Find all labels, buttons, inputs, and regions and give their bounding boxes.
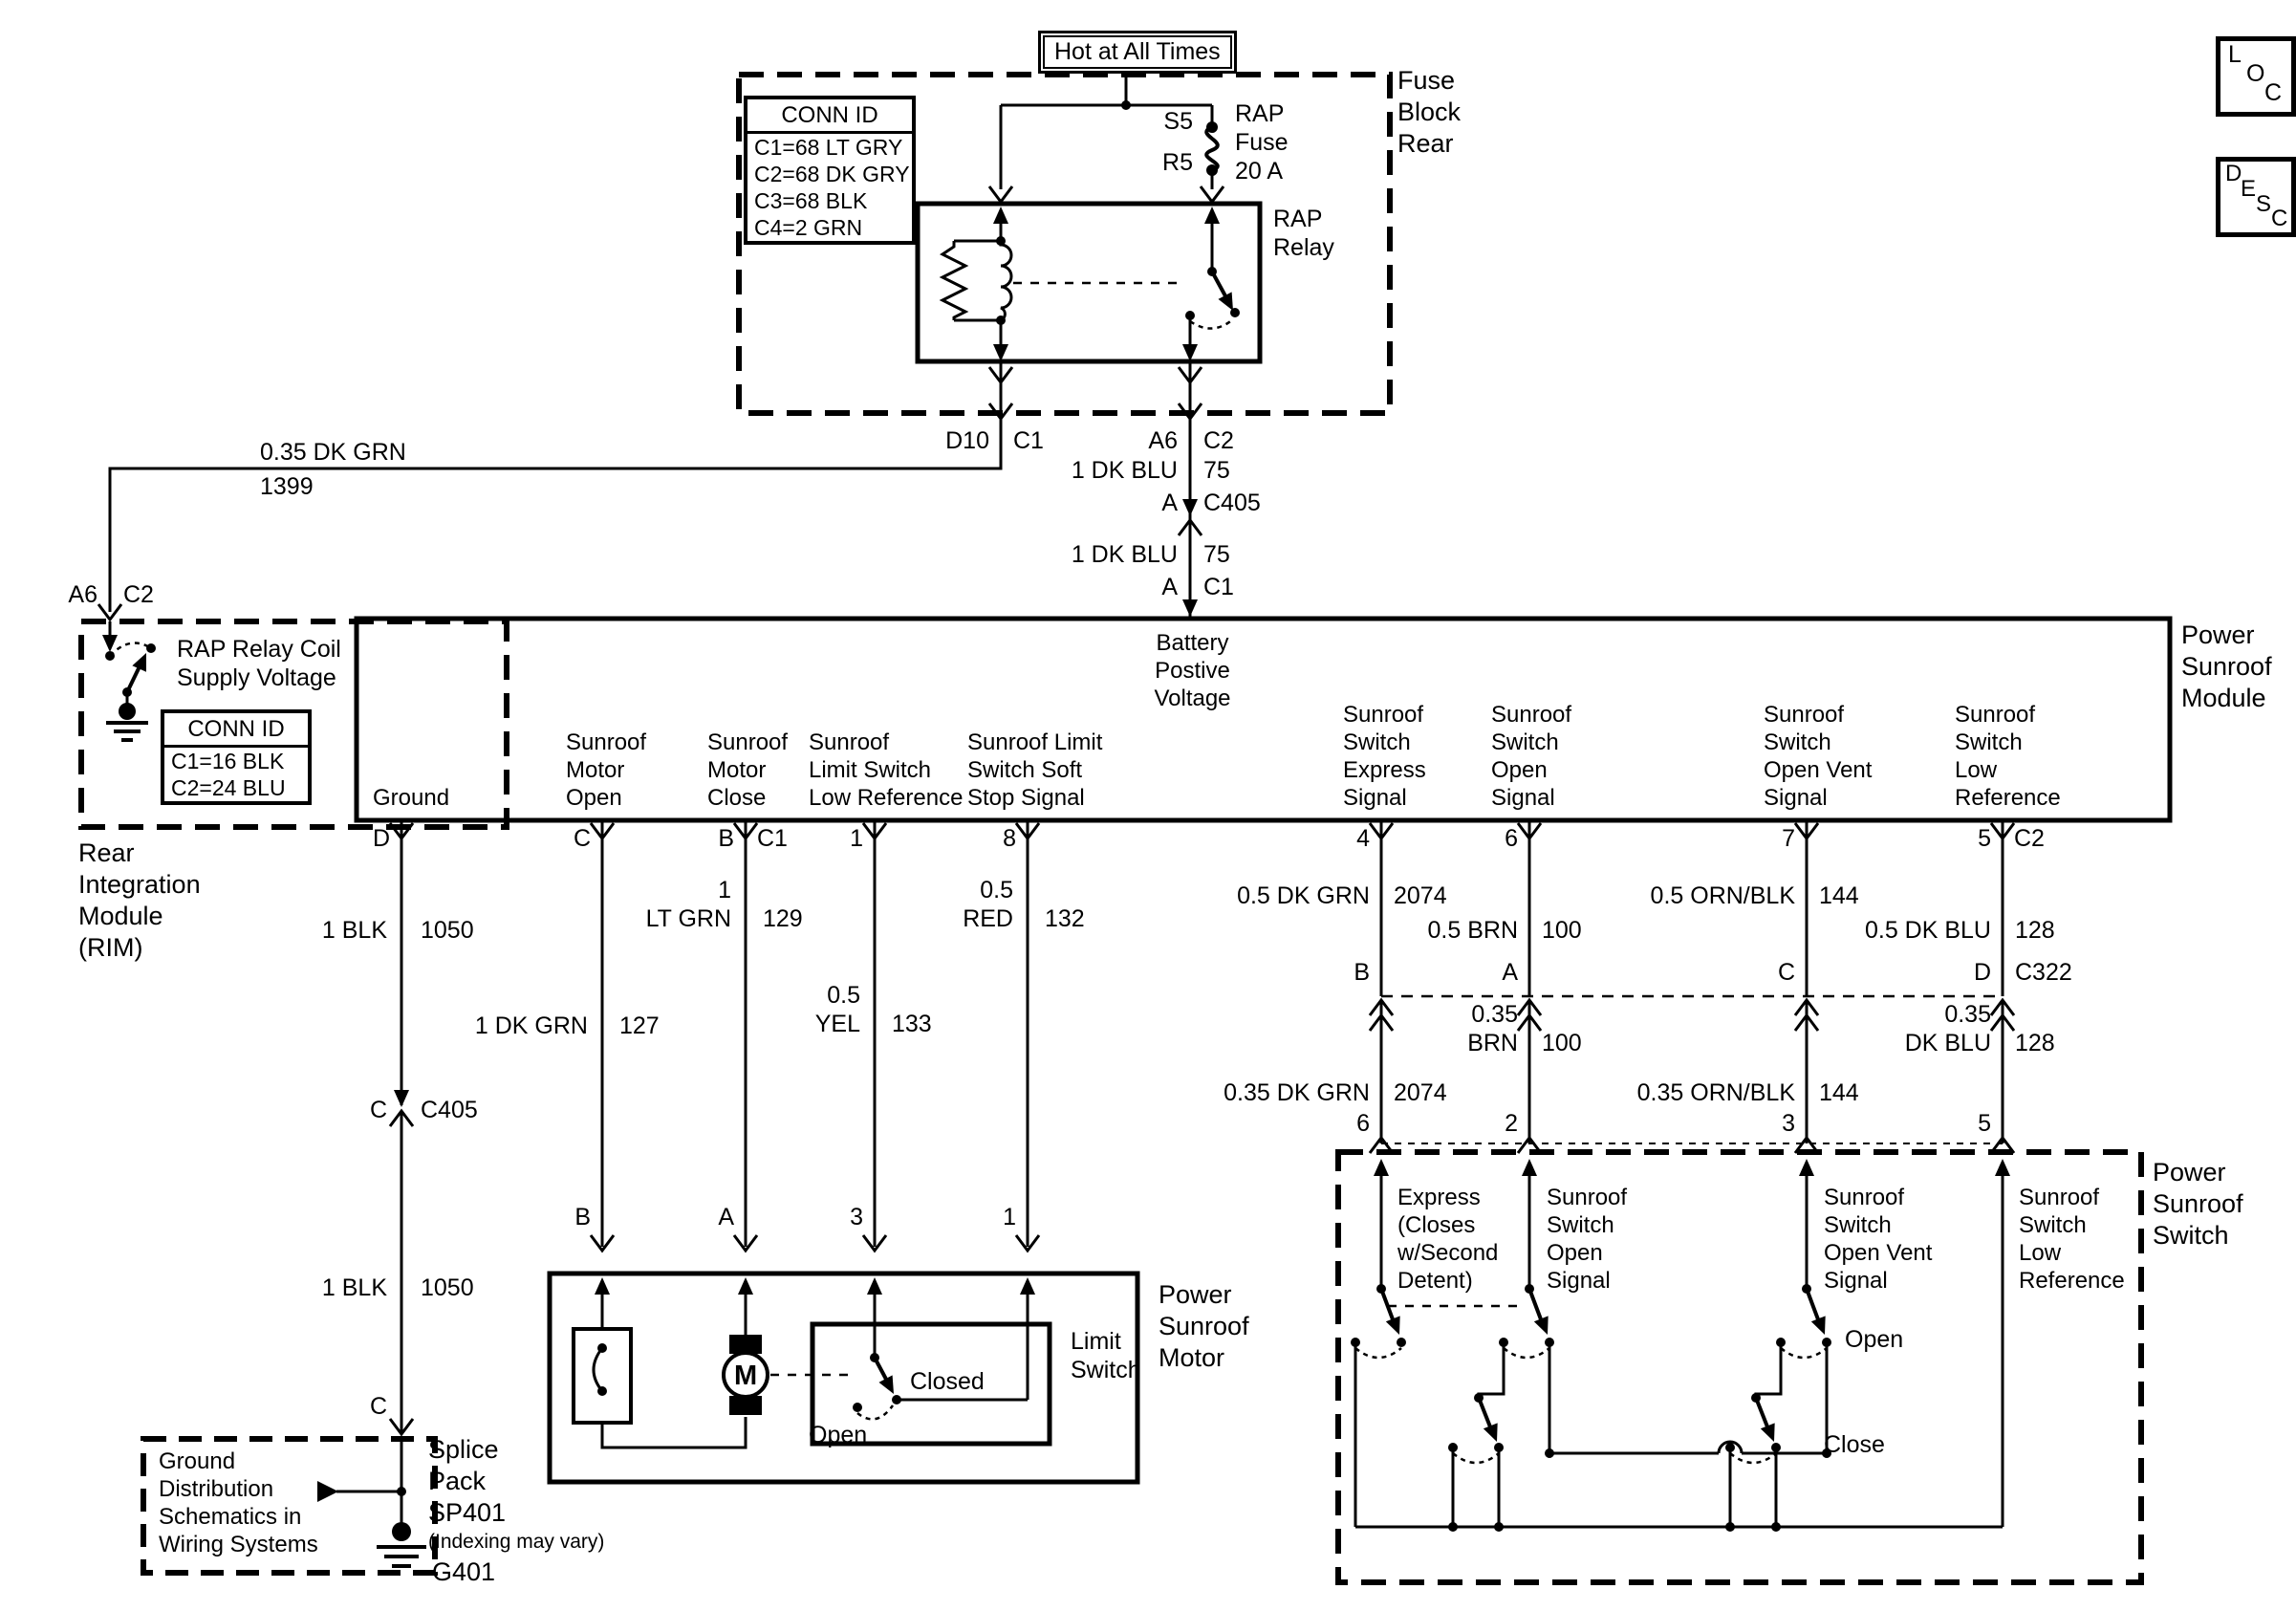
pin-c-c405: C xyxy=(370,1096,387,1124)
wire-05ornblk: 0.5 ORN/BLK xyxy=(1651,882,1795,910)
module-title: Power Sunroof Module xyxy=(2181,620,2272,714)
relay-coil xyxy=(1001,241,1011,320)
circuit-100-upper: 100 xyxy=(1542,916,1582,945)
wire-1ltgrn: 1 LT GRN xyxy=(646,876,731,933)
wire-05yel: 0.5 YEL xyxy=(815,981,860,1038)
module-pin-5: 5 xyxy=(1978,824,1991,853)
desc-letter: E xyxy=(2241,177,2256,201)
circuit-144-lower: 144 xyxy=(1819,1078,1859,1107)
module-pin-8: 8 xyxy=(1003,824,1016,853)
wire-1blk-upper: 1 BLK xyxy=(322,916,387,945)
hot-at-all-times-box: Hot at All Times xyxy=(1038,31,1237,74)
conn-c1: C1 xyxy=(1013,426,1044,455)
motor-m-symbol-label: M xyxy=(734,1361,757,1390)
rap-relay-internals xyxy=(942,236,1240,361)
conn-id-row: C3=68 BLK xyxy=(747,187,912,214)
ground-distribution-note: Ground Distribution Schematics in Wiring… xyxy=(159,1448,318,1558)
rap-relay-label: RAP Relay xyxy=(1273,205,1334,262)
module-pin-c: C xyxy=(574,824,591,853)
switch-label-open-signal: Sunroof Switch Open Signal xyxy=(1547,1184,1627,1295)
rim-conn-id-table: CONN ID C1=16 BLK C2=24 BLU xyxy=(161,709,312,805)
module-label-sw-express: Sunroof Switch Express Signal xyxy=(1343,701,1426,812)
circuit-breaker xyxy=(574,1329,631,1423)
c322-pin-c: C xyxy=(1778,958,1795,987)
wire-035brn: 0.35 BRN xyxy=(1467,1000,1518,1057)
module-label-sw-open: Sunroof Switch Open Signal xyxy=(1491,701,1571,812)
switch-label-low-ref: Sunroof Switch Low Reference xyxy=(2019,1184,2125,1295)
switch-wires xyxy=(1370,822,2014,1176)
circuit-144-upper: 144 xyxy=(1819,882,1859,910)
battery-voltage-wire xyxy=(1179,361,1202,617)
fuse-element xyxy=(1206,121,1218,176)
relay-resistor xyxy=(942,241,965,320)
circuit-129: 129 xyxy=(763,904,803,933)
fuse-pin-r5: R5 xyxy=(1162,148,1193,177)
switch-pin-6: 6 xyxy=(1356,1109,1370,1138)
conn-c1-module: C1 xyxy=(1203,573,1234,601)
loc-button[interactable]: L O C xyxy=(2216,36,2296,117)
circuit-2074-upper: 2074 xyxy=(1394,882,1447,910)
conn-c405-ground: C405 xyxy=(421,1096,478,1124)
sunroof-switch-title: Power Sunroof Switch xyxy=(2153,1157,2243,1252)
limit-closed-label: Closed xyxy=(910,1367,985,1396)
motor-pin-b: B xyxy=(574,1203,591,1231)
circuit-132: 132 xyxy=(1045,904,1085,933)
rap-fuse-label: RAP Fuse 20 A xyxy=(1235,99,1289,185)
desc-letter: C xyxy=(2271,207,2287,230)
pin-c-splice: C xyxy=(370,1392,387,1421)
module-pin-4: 4 xyxy=(1356,824,1370,853)
module-label-sw-low-ref: Sunroof Switch Low Reference xyxy=(1955,701,2061,812)
splice-indexing-note: (Indexing may vary) xyxy=(428,1531,604,1554)
wire-dkblu-75-upper: 1 DK BLU xyxy=(1072,456,1178,485)
switch-pin-2: 2 xyxy=(1505,1109,1518,1138)
wire-05red: 0.5 RED xyxy=(963,876,1013,933)
wiring-diagram-page: Hot at All Times Fuse Block Rear CONN ID… xyxy=(0,0,2296,1611)
module-conn-c1: C1 xyxy=(757,824,788,853)
fuse-block-conn-id-table: CONN ID C1=68 LT GRY C2=68 DK GRY C3=68 … xyxy=(744,96,916,245)
module-label-soft-stop: Sunroof Limit Switch Soft Stop Signal xyxy=(967,729,1102,812)
conn-id-row: C2=24 BLU xyxy=(164,774,308,801)
module-pin-d: D xyxy=(373,824,390,853)
motor-pin-1: 1 xyxy=(1003,1203,1016,1231)
pin-a6: A6 xyxy=(1148,426,1178,455)
rim-title: Rear Integration Module (RIM) xyxy=(78,838,201,964)
pin-a-c1: A xyxy=(1161,573,1178,601)
wire-dkgrn-1399-label: 0.35 DK GRN xyxy=(260,438,406,467)
wire-05brn: 0.5 BRN xyxy=(1428,916,1518,945)
limit-switch-label: Limit Switch xyxy=(1071,1327,1141,1384)
wire-05dkgrn: 0.5 DK GRN xyxy=(1237,882,1370,910)
motor-pin-3: 3 xyxy=(850,1203,863,1231)
circuit-75-lower: 75 xyxy=(1203,540,1230,569)
circuit-127: 127 xyxy=(619,1012,660,1040)
fuse-block-title: Fuse Block Rear xyxy=(1397,65,1461,160)
module-pin-1: 1 xyxy=(850,824,863,853)
wire-05dkblu: 0.5 DK BLU xyxy=(1865,916,1991,945)
desc-button[interactable]: D E S C xyxy=(2216,157,2296,237)
c322-pin-b: B xyxy=(1354,958,1370,987)
circuit-2074-lower: 2074 xyxy=(1394,1078,1447,1107)
pin-d10: D10 xyxy=(945,426,989,455)
conn-id-row: C1=16 BLK xyxy=(164,748,308,774)
switch-close-position-label: Close xyxy=(1824,1430,1885,1459)
wire-1dkgrn: 1 DK GRN xyxy=(475,1012,588,1040)
conn-id-header: CONN ID xyxy=(164,713,308,748)
circuit-128-lower: 128 xyxy=(2015,1029,2055,1057)
switch-label-express: Express (Closes w/Second Detent) xyxy=(1397,1184,1498,1295)
conn-id-row: C1=68 LT GRY xyxy=(747,134,912,161)
wire-035dkgrn: 0.35 DK GRN xyxy=(1224,1078,1370,1107)
switch-open-position-label: Open xyxy=(1845,1325,1903,1354)
rap-relay-coil-label: RAP Relay Coil Supply Voltage xyxy=(177,635,341,692)
rap-coil-supply-wire xyxy=(98,361,1012,652)
schematic-lines xyxy=(0,0,2296,1611)
circuit-1050-upper: 1050 xyxy=(421,916,474,945)
conn-c405: C405 xyxy=(1203,489,1261,517)
circuit-1050-lower: 1050 xyxy=(421,1274,474,1302)
circuit-128-upper: 128 xyxy=(2015,916,2055,945)
splice-dot xyxy=(392,1522,411,1541)
wire-035ornblk: 0.35 ORN/BLK xyxy=(1637,1078,1795,1107)
rim-ground-symbol xyxy=(106,723,148,740)
g401-ground-symbol xyxy=(377,1547,426,1566)
module-label-motor-close: Sunroof Motor Close xyxy=(707,729,788,812)
circuit-100-lower: 100 xyxy=(1542,1029,1582,1057)
relay-switch xyxy=(1182,267,1240,361)
switch-pin-3: 3 xyxy=(1782,1109,1795,1138)
desc-letter: S xyxy=(2256,192,2271,216)
circuit-75-upper: 75 xyxy=(1203,456,1230,485)
module-pin-6: 6 xyxy=(1505,824,1518,853)
fuse-pin-s5: S5 xyxy=(1163,107,1193,136)
circuit-1399: 1399 xyxy=(260,472,314,501)
circuit-133: 133 xyxy=(892,1010,932,1038)
rim-pin-a6: A6 xyxy=(68,580,97,609)
module-label-limit-low-ref: Sunroof Limit Switch Low Reference xyxy=(809,729,963,812)
switch-pin-5: 5 xyxy=(1978,1109,1991,1138)
c322-pin-a: A xyxy=(1502,958,1518,987)
rim-conn-c2: C2 xyxy=(123,580,154,609)
pin-a-c405: A xyxy=(1161,489,1178,517)
loc-letter: C xyxy=(2264,81,2282,105)
motor-pin-a: A xyxy=(718,1203,734,1231)
wire-1blk-lower: 1 BLK xyxy=(322,1274,387,1302)
hot-at-all-times-label: Hot at All Times xyxy=(1043,35,1232,69)
conn-c2: C2 xyxy=(1203,426,1234,455)
splice-pack-label: Splice Pack SP401 xyxy=(428,1434,506,1529)
module-pin-connectors xyxy=(390,823,2014,838)
module-pin-7: 7 xyxy=(1782,824,1795,853)
wire-dkblu-75-lower: 1 DK BLU xyxy=(1072,540,1178,569)
conn-id-row: C4=2 GRN xyxy=(747,214,912,241)
module-label-sw-open-vent: Sunroof Switch Open Vent Signal xyxy=(1764,701,1872,812)
motor-title: Power Sunroof Motor xyxy=(1159,1279,1249,1374)
g401-label: G401 xyxy=(432,1557,495,1588)
loc-letter: L xyxy=(2228,43,2242,67)
conn-id-row: C2=68 DK GRY xyxy=(747,161,912,187)
rim-internals xyxy=(105,643,156,740)
switch-label-open-vent: Sunroof Switch Open Vent Signal xyxy=(1824,1184,1932,1295)
conn-c322: C322 xyxy=(2015,958,2072,987)
desc-letter: D xyxy=(2225,162,2242,185)
module-label-ground: Ground xyxy=(373,784,449,812)
module-battery-label: Battery Postive Voltage xyxy=(1133,629,1252,712)
module-label-motor-open: Sunroof Motor Open xyxy=(566,729,646,812)
limit-open-label: Open xyxy=(809,1421,867,1449)
wire-035dkblu: 0.35 DK BLU xyxy=(1905,1000,1991,1057)
loc-letter: O xyxy=(2246,62,2264,86)
conn-id-header: CONN ID xyxy=(747,99,912,134)
c322-pin-d: D xyxy=(1974,958,1991,987)
module-conn-c2: C2 xyxy=(2014,824,2045,853)
module-pin-b: B xyxy=(718,824,734,853)
